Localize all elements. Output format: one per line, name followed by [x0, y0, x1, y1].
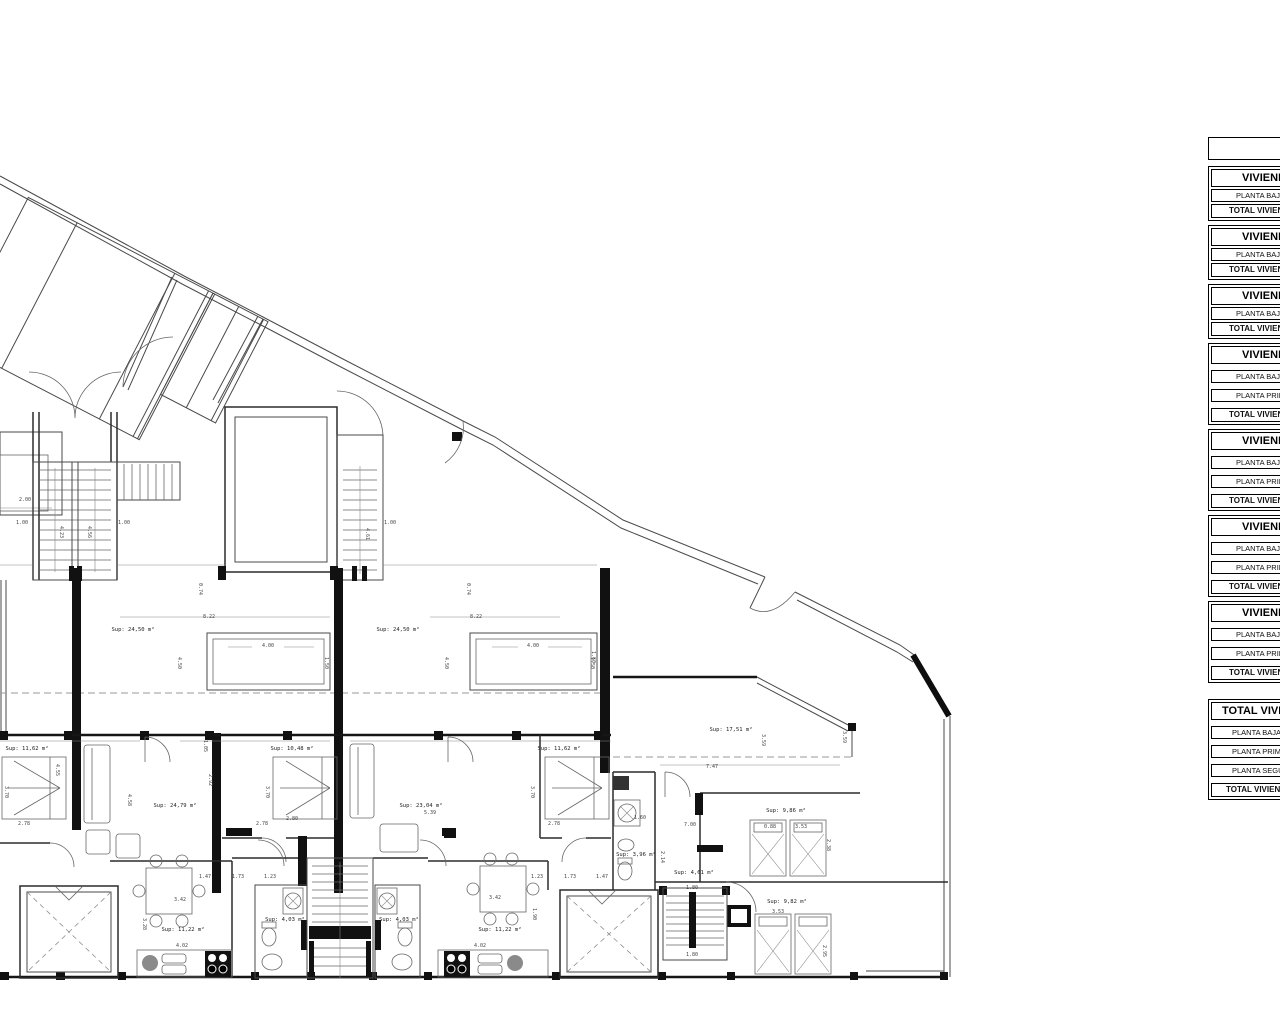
dimension-label: 1.23: [264, 874, 276, 880]
summary-table: VIVIENDAPLANTA BAJAPLANTA PRIMERATOTAL V…: [1208, 515, 1280, 597]
dimension-label: 3.53: [795, 824, 807, 830]
room-label-bedroom-a2: Sup: 10,48 m²: [270, 745, 313, 752]
dimension-label: 2.95: [821, 945, 827, 957]
side-table: [444, 828, 456, 838]
stair-c: [663, 888, 727, 960]
dimension-label: 1.80: [686, 952, 698, 958]
table-row: TOTAL VIVIENDA: [1211, 580, 1280, 594]
twin-beds: [755, 914, 831, 974]
floor-plan-page: Sup: 24,50 m²Sup: 24,50 m²Sup: 17,51 m²S…: [0, 0, 1280, 1024]
dimension-label: 2.78: [548, 821, 560, 827]
dimension-label: 4.00: [262, 643, 274, 649]
patio-b: [560, 890, 658, 978]
toilet: [618, 858, 632, 864]
table-row: TOTAL VIVIENDA: [1211, 263, 1280, 277]
dimension-label: 3.59: [760, 734, 766, 746]
upper-terrace-block: [0, 197, 268, 467]
summary-table: VIVIENDAPLANTA BAJAPLANTA PRIMERATOTAL V…: [1208, 429, 1280, 511]
dimension-label: 3.59: [841, 731, 847, 743]
summary-table: VIVIENDAPLANTA BAJAPLANTA PRIMERATOTAL V…: [1208, 601, 1280, 683]
kitchen-counter: [137, 950, 232, 977]
boundary-fence: [0, 176, 950, 977]
washer: [613, 776, 629, 790]
room-label-kitchen-a: Sup: 11,22 m²: [161, 926, 204, 933]
dimension-label: 0.88: [764, 824, 776, 830]
dimension-label: 2.38: [825, 839, 831, 851]
table-title: VIVIENDA: [1211, 518, 1280, 536]
dimension-label: 4.55: [54, 764, 60, 776]
dimension-label: 4.02: [474, 943, 486, 949]
dimension-label: 2.92: [207, 774, 213, 786]
kitchen-counter: [438, 950, 548, 977]
dimension-label: 2.78: [256, 821, 268, 827]
dimension-label: 4.00: [527, 643, 539, 649]
floor-plan-drawing: Sup: 24,50 m²Sup: 24,50 m²Sup: 17,51 m²S…: [0, 0, 1280, 1024]
sofa: [350, 744, 374, 818]
dimension-label: 5.39: [424, 810, 436, 816]
armchair: [116, 834, 140, 858]
dimension-label: 4.50: [443, 657, 449, 669]
dimension-label: 2.14: [659, 851, 665, 863]
dimension-label: 3.42: [174, 897, 186, 903]
party-walls: [72, 566, 610, 893]
table-title: VIVIENDA: [1211, 604, 1280, 622]
room-label-bedroom-a1: Sup: 11,62 m²: [5, 745, 48, 752]
dimension-label: 4.02: [176, 943, 188, 949]
dimension-label: 3.53: [772, 909, 784, 915]
dimension-label: 1.00: [384, 520, 396, 526]
stairwell-1: [33, 412, 180, 581]
table-row: PLANTA BAJA: [1211, 542, 1280, 555]
table-title: VIVIENDA: [1211, 169, 1280, 187]
dimension-label: 0.74: [465, 583, 471, 595]
pool-terrace-a: [207, 633, 330, 690]
table-row: PLANTA BAJA: [1211, 456, 1280, 469]
table-row: PLANTA BAJA: [1211, 370, 1280, 383]
dimension-label: 1.00: [118, 520, 130, 526]
room-label-terrace-a: Sup: 24,50 m²: [111, 626, 154, 633]
table-row: PLANTA BAJA: [1211, 307, 1280, 320]
dimension-label: 4.23: [58, 526, 64, 538]
dimension-label: 3.28: [141, 918, 147, 930]
sofa: [380, 824, 418, 852]
stair-ab: [307, 858, 373, 978]
dimension-label: 3.70: [264, 786, 270, 798]
sink: [618, 839, 634, 851]
dimension-label: 4.58: [126, 794, 132, 806]
armchair: [86, 830, 110, 854]
summary-table: VIVIENDAPLANTA BAJATOTAL VIVIENDA: [1208, 166, 1280, 221]
dimension-label: 1.60: [590, 651, 596, 663]
table-row: PLANTA PRIMERA: [1211, 475, 1280, 488]
dimension-label: 1.90: [531, 908, 537, 920]
dimension-label: 4.56: [86, 526, 92, 538]
dimension-label: 1.73: [564, 874, 576, 880]
table-title: TOTAL VIVIENDAS: [1211, 702, 1280, 720]
sink: [392, 954, 412, 970]
dimension-label: 8.22: [203, 614, 215, 620]
summary-tables-column: VIVIENDAPLANTA BAJATOTAL VIVIENDAVIVIEND…: [1208, 137, 1280, 897]
table-row: TOTAL VIVIENDA: [1211, 408, 1280, 422]
room-label-hall-c: Sup: 4,61 m²: [674, 869, 714, 876]
summary-table: VIVIENDAPLANTA BAJAPLANTA PRIMERATOTAL V…: [1208, 343, 1280, 425]
table-row: TOTAL VIVIENDA: [1211, 666, 1280, 680]
dimension-label: 1.47: [596, 874, 608, 880]
room-label-bath-c: Sup: 3,96 m²: [616, 851, 656, 858]
table-row: PLANTA PRIMERA: [1211, 647, 1280, 660]
summary-table: TOTAL VIVIENDASPLANTA BAJAPLANTA PRIMERA…: [1208, 699, 1280, 800]
summary-table: VIVIENDAPLANTA BAJATOTAL VIVIENDA: [1208, 225, 1280, 280]
table-row: PLANTA SEGUNDA: [1211, 764, 1280, 777]
entrance-courtyard: [29, 277, 383, 437]
double-bed: [545, 757, 609, 819]
dimension-label: 8.22: [470, 614, 482, 620]
table-row: PLANTA BAJA: [1211, 189, 1280, 202]
table-title: VIVIENDA: [1211, 432, 1280, 450]
table-title: VIVIENDA: [1211, 228, 1280, 246]
room-label-kitchen-b: Sup: 11,22 m²: [478, 926, 521, 933]
room-label-bath-a: Sup: 4,03 m²: [265, 916, 305, 923]
dimension-label: 3.42: [489, 895, 501, 901]
sofa: [84, 745, 110, 823]
room-label-terrace-c: Sup: 17,51 m²: [709, 726, 752, 733]
table-title: VIVIENDA: [1211, 287, 1280, 305]
room-label-bath-b: Sup: 4,03 m²: [379, 916, 419, 923]
room-label-living-a: Sup: 24,79 m²: [153, 802, 196, 809]
pool-terrace-b: [470, 633, 597, 690]
dimension-label: 1.60: [634, 815, 646, 821]
table-row: PLANTA PRIMERA: [1211, 389, 1280, 402]
dimension-label: 1.05: [202, 740, 208, 752]
dimension-label: 1.47: [199, 874, 211, 880]
title-box: [1208, 137, 1280, 160]
table-row: TOTAL VIVIENDA: [1211, 204, 1280, 218]
dimension-label: 4.61: [364, 528, 370, 540]
bottom-wall: [0, 972, 948, 980]
stairwell-2: [337, 435, 383, 581]
table-row: PLANTA PRIMERA: [1211, 745, 1280, 758]
dimension-label: 7.00: [684, 822, 696, 828]
dining-table: [133, 855, 205, 927]
table-row: PLANTA BAJA: [1211, 726, 1280, 739]
courtyard: [225, 407, 337, 572]
dimension-label: 2.00: [19, 497, 31, 503]
table-row: TOTAL VIVIENDA: [1211, 322, 1280, 336]
sink: [262, 954, 282, 970]
dimension-label: 2.78: [18, 821, 30, 827]
room-label-living-b: Sup: 23,04 m²: [399, 802, 442, 809]
dimension-label: 1.73: [232, 874, 244, 880]
dining-table: [467, 853, 539, 925]
dimension-label: 0.74: [197, 583, 203, 595]
room-label-bedroom-c1: Sup: 9,86 m²: [766, 807, 806, 814]
dimension-label: 3.70: [3, 786, 9, 798]
dimension-label: 1.80: [686, 885, 698, 891]
table-row: PLANTA BAJA: [1211, 248, 1280, 261]
dimension-label: 4.50: [176, 657, 182, 669]
double-bed: [273, 757, 337, 819]
table-row: PLANTA BAJA: [1211, 628, 1280, 641]
room-label-bedroom-b1: Sup: 11,62 m²: [537, 745, 580, 752]
room-label-terrace-b: Sup: 24,50 m²: [376, 626, 419, 633]
patio-a: [20, 886, 118, 978]
dimension-label: 2.80: [286, 816, 298, 822]
dimension-label: 7.47: [706, 764, 718, 770]
dimension-label: 1.50: [323, 657, 329, 669]
twin-beds: [750, 820, 826, 876]
summary-table: VIVIENDAPLANTA BAJATOTAL VIVIENDA: [1208, 284, 1280, 339]
dimension-label: 1.00: [16, 520, 28, 526]
room-label-bedroom-c2: Sup: 9,82 m²: [767, 898, 807, 905]
table-row: PLANTA PRIMERA: [1211, 561, 1280, 574]
apartment-front-wall: [0, 731, 690, 797]
dimension-label: 3.70: [529, 786, 535, 798]
table-title: VIVIENDA: [1211, 346, 1280, 364]
table-row: TOTAL VIVIENDA: [1211, 494, 1280, 508]
table-row: TOTAL VIVIENDAS: [1211, 783, 1280, 797]
dimension-label: 1.23: [531, 874, 543, 880]
